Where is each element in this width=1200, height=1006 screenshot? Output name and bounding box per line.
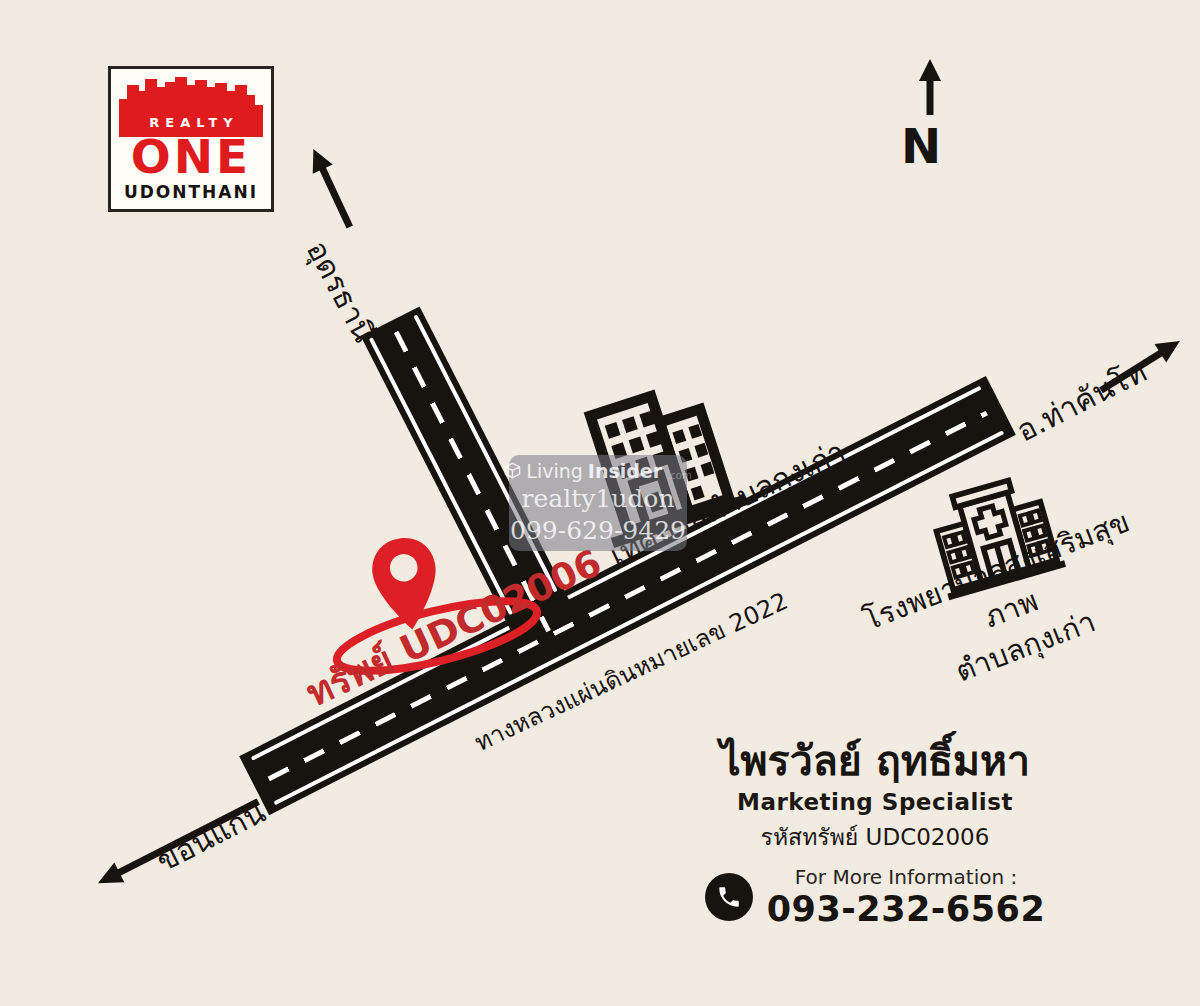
- label-thakhantho: อ.ท่าคันโท: [1008, 348, 1155, 454]
- watermark-brand: LivingInsider.com: [504, 461, 691, 482]
- north-arrow-icon: [916, 57, 944, 119]
- phone-number: 093-232-6562: [767, 889, 1046, 929]
- livinginsider-cube-icon: [504, 462, 521, 479]
- info-label: For More Information :: [767, 865, 1046, 889]
- phone-row: For More Information : 093-232-6562: [695, 865, 1055, 929]
- agent-name: ไพรวัลย์ ฤทธิ์มหา: [695, 736, 1055, 787]
- phone-icon: [716, 884, 742, 910]
- logo-city-text: UDONTHANI: [111, 182, 271, 202]
- phone-text-column: For More Information : 093-232-6562: [767, 865, 1046, 929]
- watermark-account: realty1udon: [522, 484, 675, 513]
- logo-realty-text: REALTY: [111, 115, 271, 130]
- watermark-brand-bold: Insider: [588, 461, 662, 482]
- map-canvas: N อุดรธานี ขอนแก่น อ.ท่าคันโท เทศบาลตำบล…: [0, 0, 1200, 1006]
- property-code-text: รหัสทรัพย์ UDC02006: [695, 819, 1055, 855]
- watermark-brand-light: Living: [526, 461, 583, 482]
- arrow-to-udonthani-icon: [300, 141, 364, 236]
- label-khonkaen: ขอนแก่น: [148, 789, 274, 884]
- logo-one-text: ONE: [111, 133, 271, 180]
- agent-role: Marketing Specialist: [695, 789, 1055, 815]
- watermark-phone: 099-629-9429: [510, 516, 686, 545]
- livinginsider-watermark: LivingInsider.com realty1udon 099-629-94…: [509, 455, 687, 551]
- contact-block: ไพรวัลย์ ฤทธิ์มหา Marketing Specialist ร…: [695, 736, 1055, 929]
- realty-one-logo: REALTY ONE UDONTHANI: [108, 66, 274, 212]
- phone-icon-circle: [705, 873, 753, 921]
- compass-n-label: N: [901, 118, 941, 174]
- watermark-brand-suffix: .com: [667, 470, 692, 481]
